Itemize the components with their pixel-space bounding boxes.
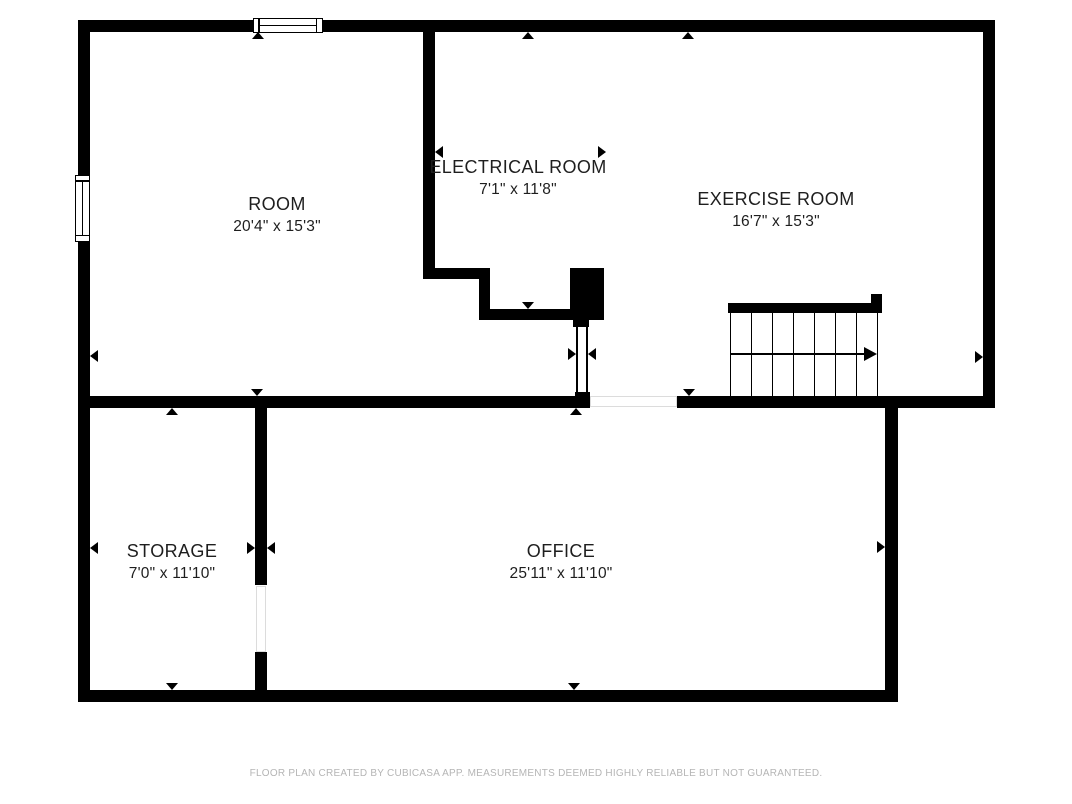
room-name: EXERCISE ROOM [697, 188, 854, 210]
room-dimensions: 7'1" x 11'8" [429, 180, 606, 200]
measure-arrow-left-icon [267, 542, 275, 554]
door-channel-cap [573, 320, 589, 327]
wall-right-upper [983, 20, 995, 408]
door-channel-line-right [586, 327, 588, 393]
measure-arrow-right-icon [877, 541, 885, 553]
disclaimer-text: FLOOR PLAN CREATED BY CUBICASA APP. MEAS… [0, 768, 1072, 779]
stair-top-wall [728, 303, 873, 313]
wall-left [78, 20, 90, 702]
wall-electrical-bottom-lower [479, 309, 571, 320]
measure-arrow-down-icon [683, 389, 695, 396]
room-label-room: ROOM 20'4" x 15'3" [233, 193, 321, 237]
measure-arrow-up-icon [252, 32, 264, 39]
measure-arrow-right-icon [975, 351, 983, 363]
wall-middle-left-segment [78, 396, 575, 408]
measure-arrow-up-icon [570, 408, 582, 415]
room-label-exercise-room: EXERCISE ROOM 16'7" x 15'3" [697, 188, 854, 232]
wall-middle-right-segment [677, 396, 995, 408]
room-name: ELECTRICAL ROOM [429, 156, 606, 178]
door-channel-line-left [576, 327, 578, 393]
room-label-electrical-room: ELECTRICAL ROOM 7'1" x 11'8" [429, 156, 606, 200]
measure-arrow-down-icon [166, 683, 178, 690]
room-dimensions: 25'11" x 11'10" [510, 564, 613, 584]
wall-top [78, 20, 995, 32]
measure-arrow-up-icon [682, 32, 694, 39]
measure-arrow-up-icon [166, 408, 178, 415]
measure-arrow-left-icon [588, 348, 596, 360]
measure-arrow-right-icon [247, 542, 255, 554]
measure-arrow-down-icon [568, 683, 580, 690]
stair-direction-line [730, 353, 866, 355]
storage-door-leaf [256, 586, 266, 652]
room-dimensions: 7'0" x 11'10" [127, 564, 218, 584]
floor-plan: ROOM 20'4" x 15'3" ELECTRICAL ROOM 7'1" … [0, 0, 1072, 804]
measure-arrow-down-icon [251, 389, 263, 396]
measure-arrow-left-icon [90, 542, 98, 554]
stair-wall-stub [871, 294, 882, 313]
measure-arrow-up-icon [522, 32, 534, 39]
opening-threshold [590, 396, 677, 407]
measure-arrow-down-icon [522, 302, 534, 309]
wall-electrical-left [423, 20, 435, 278]
room-dimensions: 16'7" x 15'3" [697, 212, 854, 232]
window-icon [253, 18, 323, 33]
chimney-block [570, 268, 604, 320]
room-label-office: OFFICE 25'11" x 11'10" [510, 540, 613, 584]
room-name: STORAGE [127, 540, 218, 562]
window-icon [75, 175, 90, 242]
measure-arrow-right-icon [568, 348, 576, 360]
measure-arrow-left-icon [90, 350, 98, 362]
stair-direction-arrow-icon [864, 347, 877, 361]
wall-storage-partition-lower [255, 652, 267, 690]
wall-bottom [78, 690, 898, 702]
door-jamb-stub [575, 392, 590, 408]
room-dimensions: 20'4" x 15'3" [233, 217, 321, 237]
room-name: ROOM [233, 193, 321, 215]
room-label-storage: STORAGE 7'0" x 11'10" [127, 540, 218, 584]
wall-storage-partition-upper [255, 408, 267, 585]
wall-right-lower [885, 396, 898, 702]
room-name: OFFICE [510, 540, 613, 562]
